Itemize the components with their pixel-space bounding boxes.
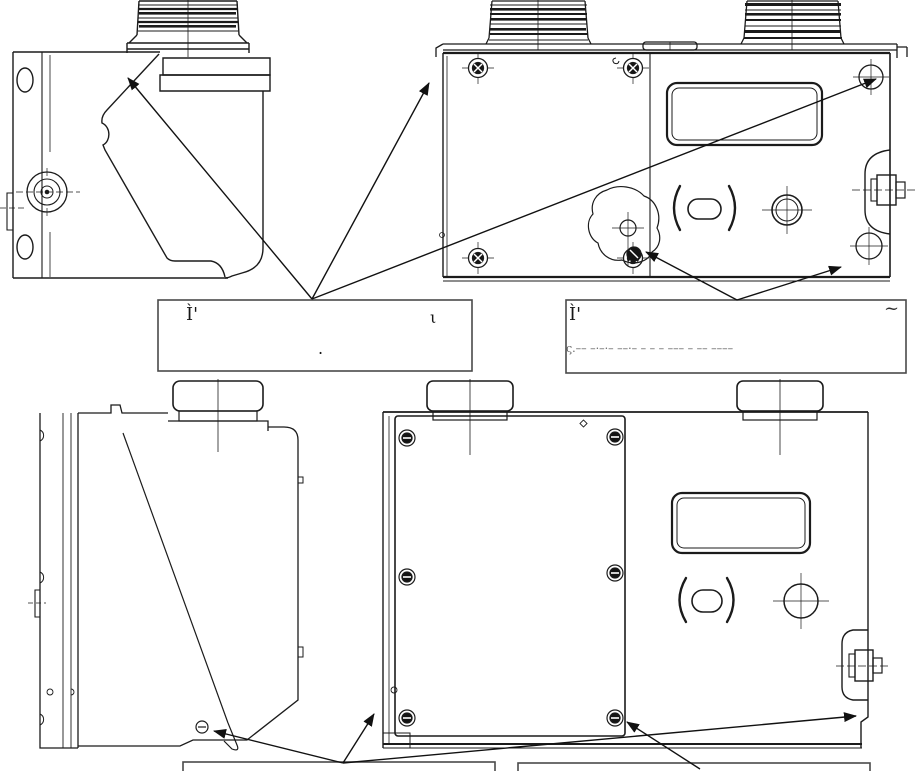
callout-arrows (128, 78, 876, 769)
panel-screws (462, 52, 649, 274)
cap-connector-left-icon (427, 379, 513, 455)
control-button (762, 186, 812, 234)
callout-box-top-right (566, 300, 906, 373)
arrow-seal-front-left-edge (312, 83, 429, 299)
callout-boxes (158, 300, 906, 771)
left-strip (28, 413, 78, 748)
callout-box-bottom-right (518, 763, 870, 771)
seal-hole-top-right (853, 59, 889, 95)
cap-connector-icon (168, 379, 268, 452)
seal-screw-side (196, 721, 208, 733)
lcd-display (667, 83, 822, 145)
top-flange (436, 42, 907, 58)
side-valve (852, 150, 915, 234)
arrow-screw-front-left-bottom (343, 714, 374, 763)
seal-screw (627, 247, 641, 261)
body-outline (440, 53, 891, 281)
nfc-speaker-icon (680, 578, 734, 622)
threaded-connector-icon (127, 0, 249, 57)
side-port (0, 168, 80, 230)
manual-page: Ì'ι.Ì'~ς.–– –·–·– ––·– – – – ––– – –– ––… (0, 0, 918, 771)
cover-panel (395, 416, 625, 736)
arrow-screw-front-bottom-right (343, 716, 856, 763)
nfc-speaker-icon (674, 186, 735, 230)
body-outline (78, 405, 303, 750)
threaded-connector-left-icon (486, 0, 591, 50)
lcd-display (672, 493, 810, 553)
meter-front-view-top (436, 0, 915, 281)
side-valve (836, 630, 890, 700)
arrow-screw-side-view-bottom (214, 731, 343, 763)
arrow-seal-front-top-right-screw (312, 79, 876, 299)
callout-box-bottom-left (183, 762, 495, 771)
control-button (773, 573, 829, 629)
callout-box-top-left (158, 300, 472, 371)
collar (160, 58, 270, 91)
meter-front-view-bottom (383, 379, 890, 748)
meter-side-view-top (0, 0, 270, 278)
threaded-connector-right-icon (741, 0, 844, 50)
front-slant-edge (102, 54, 225, 277)
arrow-screw-panel-bottom-right (627, 722, 700, 769)
arrow-seal-front-bottom-right (737, 267, 841, 300)
body-outline (13, 52, 263, 278)
meter-side-view-bottom (28, 379, 303, 750)
cap-connector-right-icon (737, 379, 823, 455)
